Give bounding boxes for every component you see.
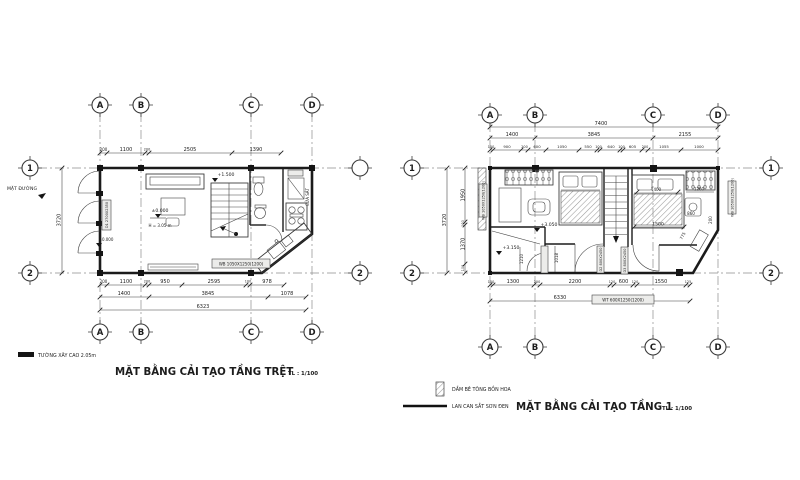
first-legend: DẦM BÊ TÔNG BỒN HOA LAN CAN SẮT SƠN ĐEN — [403, 382, 511, 410]
grid-bubble-label: 2 — [27, 269, 33, 279]
dim-label: 1018 — [554, 252, 559, 263]
door-tag-box — [541, 246, 548, 273]
dim-label: 3720 — [57, 214, 63, 227]
dim-label: 950 — [160, 279, 170, 285]
flower-box-legend-swatch — [436, 382, 444, 396]
railing-legend-label: LAN CAN SẮT SƠN ĐEN — [452, 402, 509, 410]
wall-legend-swatch — [18, 352, 34, 357]
stairs — [211, 183, 248, 237]
dim-label: 1100 — [120, 279, 133, 285]
dim-label: 600 — [533, 144, 541, 149]
stair-arrow-icon — [613, 236, 619, 243]
mattress-hatch — [634, 194, 682, 225]
grid-bubble-label: D — [308, 328, 315, 338]
dim-col-left: 3720 — [57, 166, 65, 276]
grid-bubble-label: A — [487, 343, 494, 353]
plan-title-ground: MẶT BẰNG CẢI TẠO TẦNG TRỆT — [115, 363, 293, 378]
dim-label: 200 — [144, 280, 150, 284]
dim-label: 3845 — [588, 132, 601, 138]
dim-label: 1050 — [557, 144, 567, 149]
dim-label: 3845 — [202, 291, 215, 297]
level-stair: +1.500 — [217, 172, 234, 178]
level-entry: ±0.000 — [99, 237, 114, 242]
dim-label: 100 — [461, 265, 465, 271]
dim-row-top-axes: 1400 3845 2155 — [488, 132, 721, 140]
grid-bubble-label: 1 — [768, 164, 774, 174]
window-tag: WT 600X1250(1200) — [602, 298, 644, 303]
diagonal-bench — [690, 230, 708, 251]
grid-bubble-label: 2 — [409, 269, 415, 279]
bedroom2-door-arc — [633, 245, 659, 271]
dim-label: 200 — [521, 145, 527, 149]
grid-bubble-label: C — [650, 111, 656, 121]
dim-label: 2155 — [679, 132, 692, 138]
dim-row-bottom-total: 6330 WT 600X1250(1200) — [488, 295, 693, 304]
ground-legend: TƯỜNG XÂY CAO 2.05m — [18, 352, 96, 359]
scale-label: TL : 1/100 — [288, 371, 318, 377]
grid-bubble-label: C — [248, 101, 254, 111]
dim-label: 1300 — [507, 279, 520, 285]
door-tag: D2 800X2450 — [599, 247, 603, 271]
dim-label: 1390 — [250, 147, 263, 153]
floor-plans-svg: MẶT ĐƯỜNG ±0.000 ±0.000 H = 3.05 m +1.50… — [0, 0, 800, 480]
door-tag: D3 800X2450 — [623, 248, 627, 272]
dim-label: 1370 — [461, 238, 467, 251]
dim-label: 200 — [534, 280, 540, 284]
grid-bubble-label: D — [714, 343, 721, 353]
sink-icon — [255, 205, 267, 219]
dim-label: 1260 — [694, 187, 705, 192]
dim-label: 200 — [100, 147, 108, 152]
grid-bubble-label: 2 — [768, 269, 774, 279]
window-tag: WB 1050X1250(1200) — [481, 180, 485, 219]
grid-bubble-label: C — [248, 328, 254, 338]
grid-bubble-label: A — [97, 328, 104, 338]
dim-label: 605 — [629, 144, 637, 149]
window-tag: WB 1050X1250(1200) — [219, 262, 264, 267]
level-bath: +3.150 — [502, 245, 519, 251]
level-marker-icon — [496, 251, 502, 255]
dim-label: 1000 — [694, 144, 704, 149]
dim-row-top-detail: 100 900 200 600 1050 550 100 640 100 605… — [488, 144, 721, 152]
dim-label: 2505 — [184, 147, 197, 153]
grid-bubble-label: C — [650, 343, 656, 353]
desk-1 — [499, 188, 521, 222]
toilet-icon — [253, 177, 264, 196]
dim-label: 600 — [619, 279, 629, 285]
dim-label: 100 — [618, 145, 624, 149]
door-tag: D1 2700X2350 — [105, 202, 109, 228]
wc-door-arc — [266, 225, 282, 241]
grid-bubble-label: B — [532, 343, 538, 353]
grid-bubble-label: 1 — [409, 164, 415, 174]
street-arrow-icon — [38, 193, 46, 199]
stove-icon — [286, 203, 307, 230]
grid-bubble-label: B — [532, 111, 538, 121]
dim-label: 200 — [642, 145, 648, 149]
ceiling-height: H = 3.05 m — [149, 223, 172, 228]
bed-2 — [632, 175, 684, 228]
iron-door-label: CỬA SẮT — [305, 187, 310, 206]
window-tag: WB 1050X1250(1200) — [730, 177, 734, 216]
dim-label: 1950 — [461, 189, 467, 202]
grid-bubble-label: D — [308, 101, 315, 111]
dim-label: 120 — [632, 280, 638, 284]
dim-label: 860 — [687, 211, 695, 216]
dim-label: 1500 — [652, 222, 664, 228]
grid-lines — [38, 113, 352, 324]
dim-row-bottom-2: 1400 3845 1078 — [98, 291, 309, 299]
plan-title-first: MẶT BẰNG CẢI TẠO TẦNG 1 — [516, 398, 673, 413]
street-label: MẶT ĐƯỜNG — [7, 185, 38, 192]
dim-row-bottom-1: 100 1300 200 2200 120 600 120 1550 125 — [488, 279, 693, 287]
exterior-wall — [100, 168, 312, 273]
dim-label: 7400 — [595, 121, 608, 127]
dim-col-left-detail: 1950 100 1370 100 — [461, 166, 468, 276]
grid-bubble-label: D — [714, 111, 721, 121]
grid-bubble-label: 2 — [357, 269, 363, 279]
dim-label: 120 — [609, 280, 615, 284]
armchair — [528, 199, 550, 215]
grid-bubble-label: B — [138, 101, 144, 111]
dim-label: 550 — [584, 144, 592, 149]
dim-row-top: 200 1100 200 2505 1390 — [98, 147, 284, 155]
counter-sink-icon — [265, 232, 294, 259]
level-living: ±0.000 — [151, 208, 168, 214]
dim-label: 6330 — [554, 295, 567, 301]
dim-label: 200 — [144, 148, 150, 152]
grid-lines — [420, 123, 763, 339]
drawing-sheet: MẶT ĐƯỜNG ±0.000 ±0.000 H = 3.05 m +1.50… — [0, 0, 800, 480]
grid-bubble-label: A — [97, 101, 104, 111]
wardrobe-1 — [505, 170, 553, 185]
level-marker-icon — [212, 178, 218, 182]
dim-label: 1400 — [118, 291, 131, 297]
dim-label: 200 — [100, 279, 108, 284]
dim-label: 1400 — [506, 132, 519, 138]
dim-label: 100 — [595, 145, 601, 149]
window-sill-cabinet — [146, 174, 204, 189]
flower-box-legend-label: DẦM BÊ TÔNG BỒN HOA — [452, 384, 511, 393]
grid-bubbles: A B C D A B C D 1 2 1 2 — [400, 103, 783, 359]
dim-label: 1210 — [519, 253, 524, 264]
grid-bubble-label: 1 — [27, 164, 33, 174]
dim-label: 100 — [461, 220, 465, 226]
fridge-icon — [288, 178, 304, 199]
dim-row-bottom-total: 6323 — [98, 304, 309, 312]
mattress-hatch — [561, 191, 600, 223]
dim-label: 1078 — [281, 291, 294, 297]
dim-label: 1100 — [120, 147, 133, 153]
dim-label: 2595 — [208, 279, 221, 285]
level-marker-icon — [155, 214, 161, 218]
dim-label: 978 — [262, 279, 272, 285]
dim-label: 1400 — [651, 187, 662, 192]
grid-bubble-label: B — [138, 328, 144, 338]
dim-label: 900 — [503, 144, 511, 149]
dim-label: 100 — [245, 280, 251, 284]
first-floor-plan: +3.050 +3.150 1210 1018 1400 1260 860 15… — [400, 103, 800, 413]
level-bedroom: +3.050 — [540, 222, 557, 228]
dim-label: 100 — [488, 280, 494, 284]
kitchen-label-box — [288, 170, 303, 176]
dim-label: 2200 — [569, 279, 582, 285]
dim-row-top-total: 7400 — [488, 121, 721, 129]
dim-label: 640 — [607, 144, 615, 149]
dim-label: 200 — [708, 216, 713, 224]
grid-bubble-label: A — [487, 111, 494, 121]
wall-legend-label: TƯỜNG XÂY CAO 2.05m — [37, 352, 96, 359]
dim-label: 125 — [685, 280, 691, 284]
dim-label: 100 — [488, 145, 494, 149]
stairs — [605, 176, 627, 243]
dim-col-left-total: 3720 — [442, 166, 449, 276]
dim-label: 3720 — [442, 214, 448, 227]
scale-label: TL : 1/100 — [662, 406, 692, 412]
dim-label: 6323 — [197, 304, 210, 310]
wc-room — [250, 168, 283, 241]
dim-row-bottom-1: 200 1100 200 950 2595 100 978 — [98, 279, 287, 287]
dim-label: 1055 — [659, 144, 669, 149]
ground-floor-plan: MẶT ĐƯỜNG ±0.000 ±0.000 H = 3.05 m +1.50… — [7, 93, 372, 378]
grid-bubbles: A B C D A B C D 1 2 2 — [18, 93, 372, 344]
bed-1 — [559, 172, 602, 225]
dim-label: 775 — [678, 231, 686, 241]
dim-label: 1550 — [655, 279, 668, 285]
